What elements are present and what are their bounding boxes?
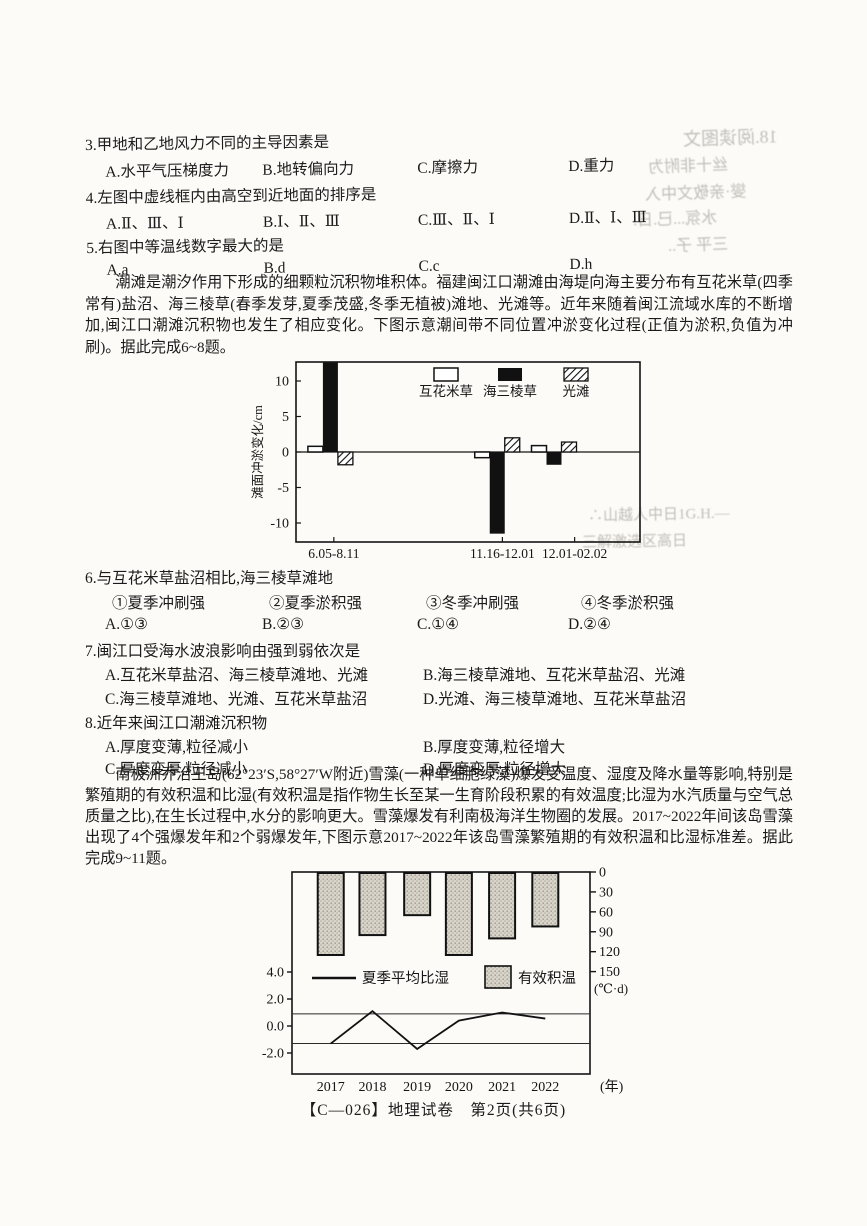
passage-tidal-flat: 潮滩是潮汐作用下形成的细颗粒沉积物堆积体。福建闽江口潮滩由海堤向海主要分布有互花… (85, 272, 793, 358)
y-tick-label: 5 (282, 410, 289, 425)
right-tick-label: 60 (599, 905, 613, 920)
question-7-options-row1: A.互花米草盐沼、海三棱草滩地、光滩 B.海三棱草滩地、互花米草盐沼、光滩 (85, 663, 805, 687)
legend-label: 互花米草 (419, 384, 473, 399)
x-tick-label: 2019 (403, 1080, 431, 1095)
question-7-options-row2: C.海三棱草滩地、光滩、互花米草盐沼 D.光滩、海三棱草滩地、互花米草盐沼 (85, 687, 805, 711)
right-tick-label: 150 (599, 965, 620, 980)
y-tick-label: 10 (275, 375, 289, 390)
chart-tidal-deposition: 1050-5-10滩面冲淤变化/cm6.05-8.1111.16-12.0112… (248, 356, 648, 569)
legend-bar-swatch (485, 966, 511, 988)
right-tick-label: 90 (599, 925, 613, 940)
question-8-options-row1: A.厚度变薄,粒径减小 B.厚度变薄,粒径增大 (85, 735, 805, 759)
algae-chart-svg: 0306090120150(℃·d)4.02.00.0-2.0夏季平均比湿有效积… (242, 862, 672, 1097)
bar-2017 (318, 873, 344, 955)
q4-option-d: D.Ⅱ、Ⅰ、Ⅲ (569, 205, 647, 228)
y-tick-label: 0 (282, 446, 289, 461)
legend-swatch-光滩 (564, 368, 588, 381)
question-6-suboptions: ①夏季冲刷强 ②夏季淤积强 ③冬季冲刷强 ④冬季淤积强 (85, 591, 805, 615)
x-tick-label: 2021 (488, 1080, 516, 1095)
x-tick-label: 12.01-02.02 (542, 546, 607, 561)
q3-option-b: B.地转偏向力 (262, 157, 354, 180)
question-8-stem: 8.近年来闽江口潮滩沉积物 (85, 711, 795, 733)
q6-sub-2: ②夏季淤积强 (269, 591, 362, 613)
right-tick-label: 30 (599, 885, 613, 900)
q8-option-a: A.厚度变薄,粒径减小 (105, 735, 248, 757)
bar-互花米草 (532, 446, 547, 452)
q6-sub-4: ④冬季淤积强 (581, 591, 674, 613)
legend-swatch-互花米草 (434, 368, 458, 381)
q7-option-a: A.互花米草盐沼、海三棱草滩地、光滩 (105, 663, 368, 685)
legend-label: 海三棱草 (483, 384, 537, 399)
q7-option-c: C.海三棱草滩地、光滩、互花米草盐沼 (105, 687, 367, 709)
q4-option-c: C.Ⅲ、Ⅱ、Ⅰ (418, 207, 495, 230)
q6-option-c: C.①④ (417, 615, 459, 634)
bar-2019 (404, 873, 430, 915)
q6-sub-1: ①夏季冲刷强 (112, 591, 205, 613)
q7-option-d: D.光滩、海三棱草滩地、互花米草盐沼 (423, 687, 686, 709)
left-tick-label: 2.0 (267, 993, 285, 1008)
q3-option-d: D.重力 (568, 153, 614, 176)
x-axis-suffix: (年) (600, 1079, 624, 1095)
q6-option-a: A.①③ (105, 615, 148, 634)
question-6-options: A.①③ B.②③ C.①④ D.②④ (85, 615, 805, 639)
bar-互花米草 (308, 446, 323, 452)
bar-2022 (532, 873, 558, 926)
x-tick-label: 11.16-12.01 (470, 546, 535, 561)
right-tick-label: 0 (599, 866, 606, 881)
x-tick-label: 2017 (317, 1080, 345, 1095)
chart-snow-algae: 0306090120150(℃·d)4.02.00.0-2.0夏季平均比湿有效积… (242, 862, 672, 1102)
legend-label: 光滩 (563, 384, 590, 399)
q3-option-c: C.摩擦力 (417, 155, 478, 178)
legend-label: 夏季平均比湿 (362, 970, 449, 987)
left-tick-label: 4.0 (267, 966, 285, 981)
right-tick-label: 120 (599, 945, 620, 960)
exam-page: 18.阅读图文 丝十非附为 燮·亲敬文中入 水氛...已.日. 三平 子.. ∴… (0, 0, 867, 1226)
y-tick-label: -5 (277, 481, 289, 496)
q4-option-a: A.Ⅱ、Ⅲ、Ⅰ (106, 211, 184, 234)
q6-option-b: B.②③ (262, 615, 304, 634)
question-7-stem: 7.闽江口受海水波浪影响由强到弱依次是 (85, 639, 795, 661)
tidal-chart-svg: 1050-5-10滩面冲淤变化/cm6.05-8.1111.16-12.0112… (248, 356, 648, 564)
bar-海三棱草 (323, 363, 338, 452)
question-6-stem: 6.与互花米草盐沼相比,海三棱草滩地 (85, 566, 795, 588)
bar-互花米草 (475, 452, 490, 458)
x-tick-label: 2022 (531, 1080, 559, 1095)
bar-2018 (359, 873, 385, 935)
legend-label: 有效积温 (518, 970, 576, 987)
question-3-stem: 3.甲地和乙地风力不同的主导因素是 (85, 124, 795, 155)
q8-option-b: B.厚度变薄,粒径增大 (423, 735, 565, 757)
passage-snow-algae: 南极洲乔治王岛(62°23′S,58°27′W附近)雪藻(一种单细胞绿藻)爆发受… (85, 764, 793, 869)
bar-海三棱草 (490, 452, 505, 534)
q7-option-b: B.海三棱草滩地、互花米草盐沼、光滩 (423, 663, 685, 685)
x-tick-label: 6.05-8.11 (308, 546, 359, 561)
y-axis-label: 滩面冲淤变化/cm (250, 405, 265, 499)
x-tick-label: 2018 (358, 1080, 386, 1095)
x-tick-label: 2020 (445, 1080, 473, 1095)
left-tick-label: 0.0 (267, 1020, 285, 1035)
q6-sub-3: ③冬季冲刷强 (426, 591, 519, 613)
right-axis-unit: (℃·d) (594, 981, 628, 996)
bar-光滩 (562, 442, 577, 452)
bar-光滩 (338, 452, 353, 465)
bar-海三棱草 (547, 452, 562, 465)
y-tick-label: -10 (270, 517, 289, 532)
q4-option-b: B.Ⅰ、Ⅱ、Ⅲ (263, 209, 340, 232)
bar-2021 (489, 873, 515, 938)
page-footer: 【C—026】地理试卷 第2页(共6页) (0, 1098, 867, 1120)
left-tick-label: -2.0 (262, 1047, 284, 1062)
bar-2020 (446, 873, 472, 955)
bar-光滩 (505, 438, 520, 452)
q6-option-d: D.②④ (568, 615, 611, 634)
legend-swatch-海三棱草 (498, 368, 522, 381)
question-block-3-5: 3.甲地和乙地风力不同的主导因素是 A.水平气压梯度力 B.地转偏向力 C.摩擦… (0, 0, 867, 290)
q3-option-a: A.水平气压梯度力 (105, 158, 229, 182)
